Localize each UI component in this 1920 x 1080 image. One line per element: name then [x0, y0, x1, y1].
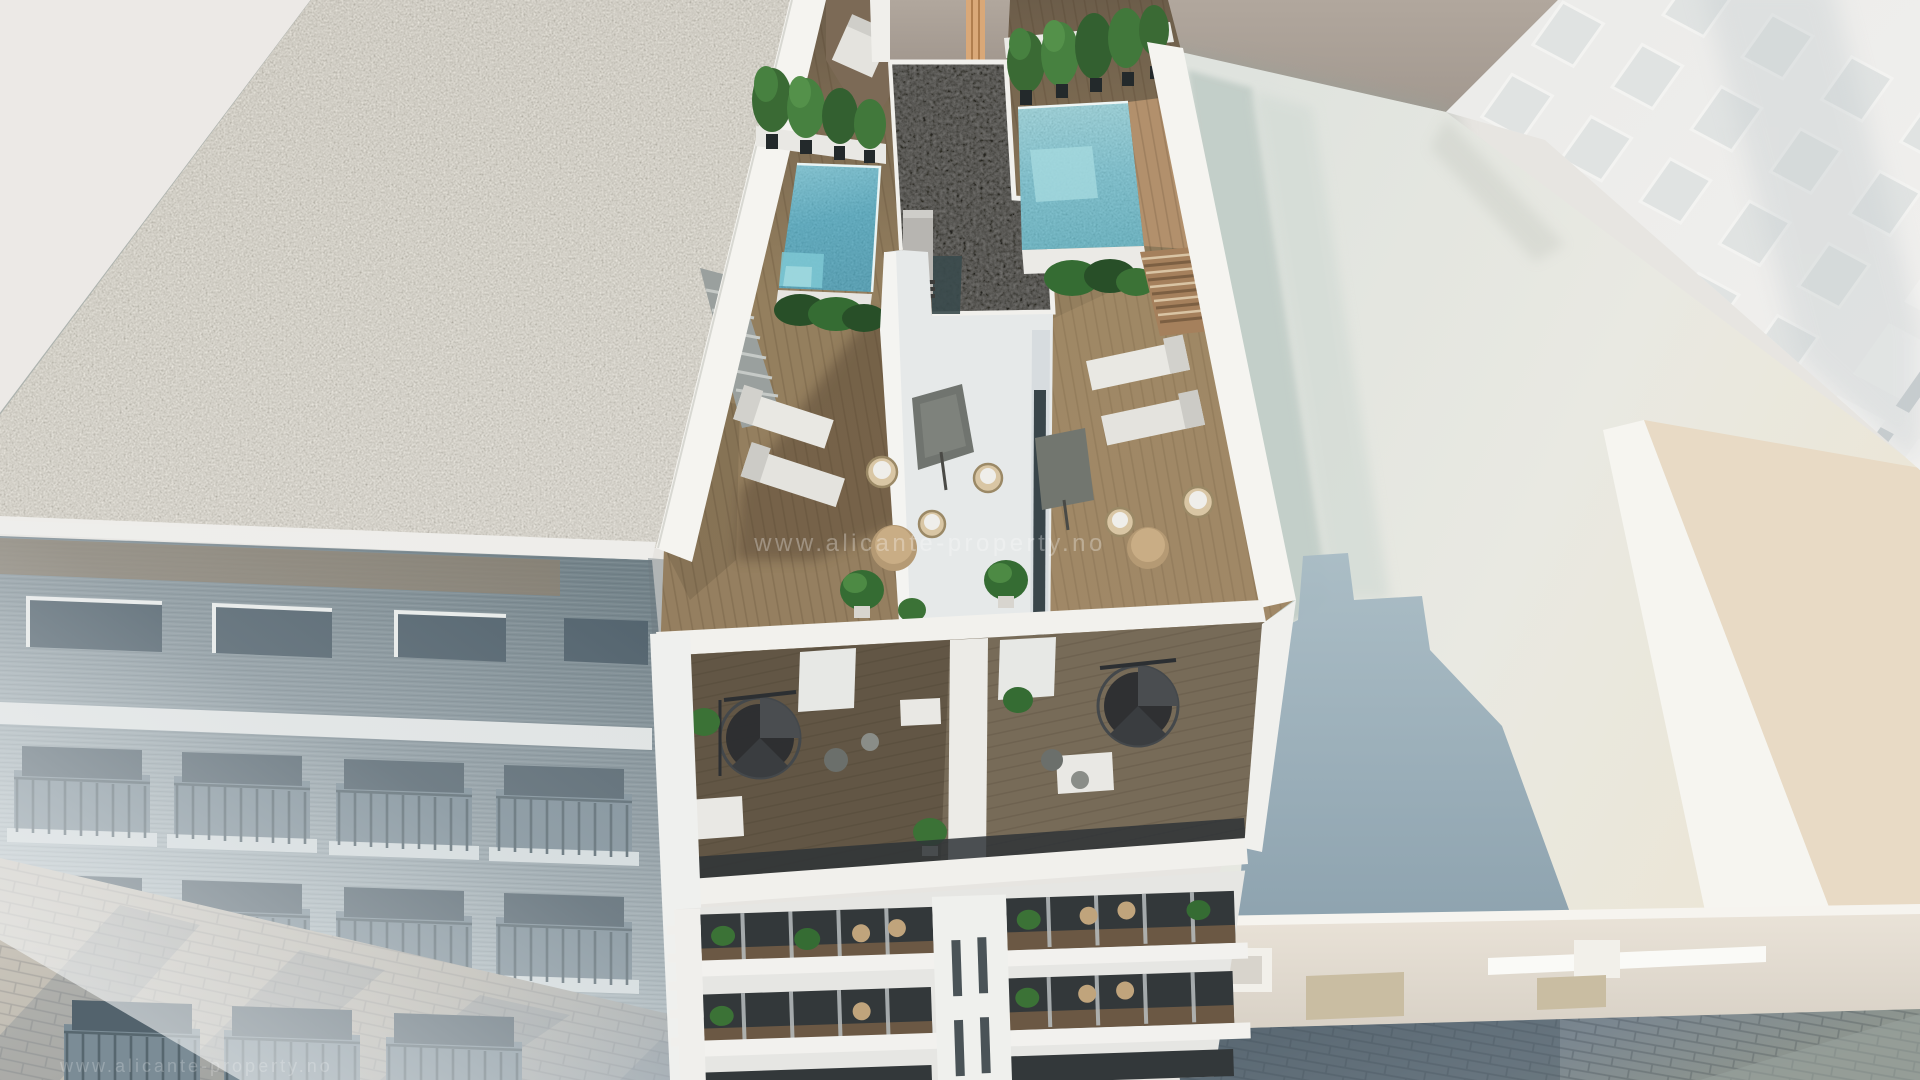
svg-text:www.alicante-property.no: www.alicante-property.no — [59, 1056, 333, 1076]
svg-text:www.alicante-property.no: www.alicante-property.no — [753, 530, 1106, 557]
